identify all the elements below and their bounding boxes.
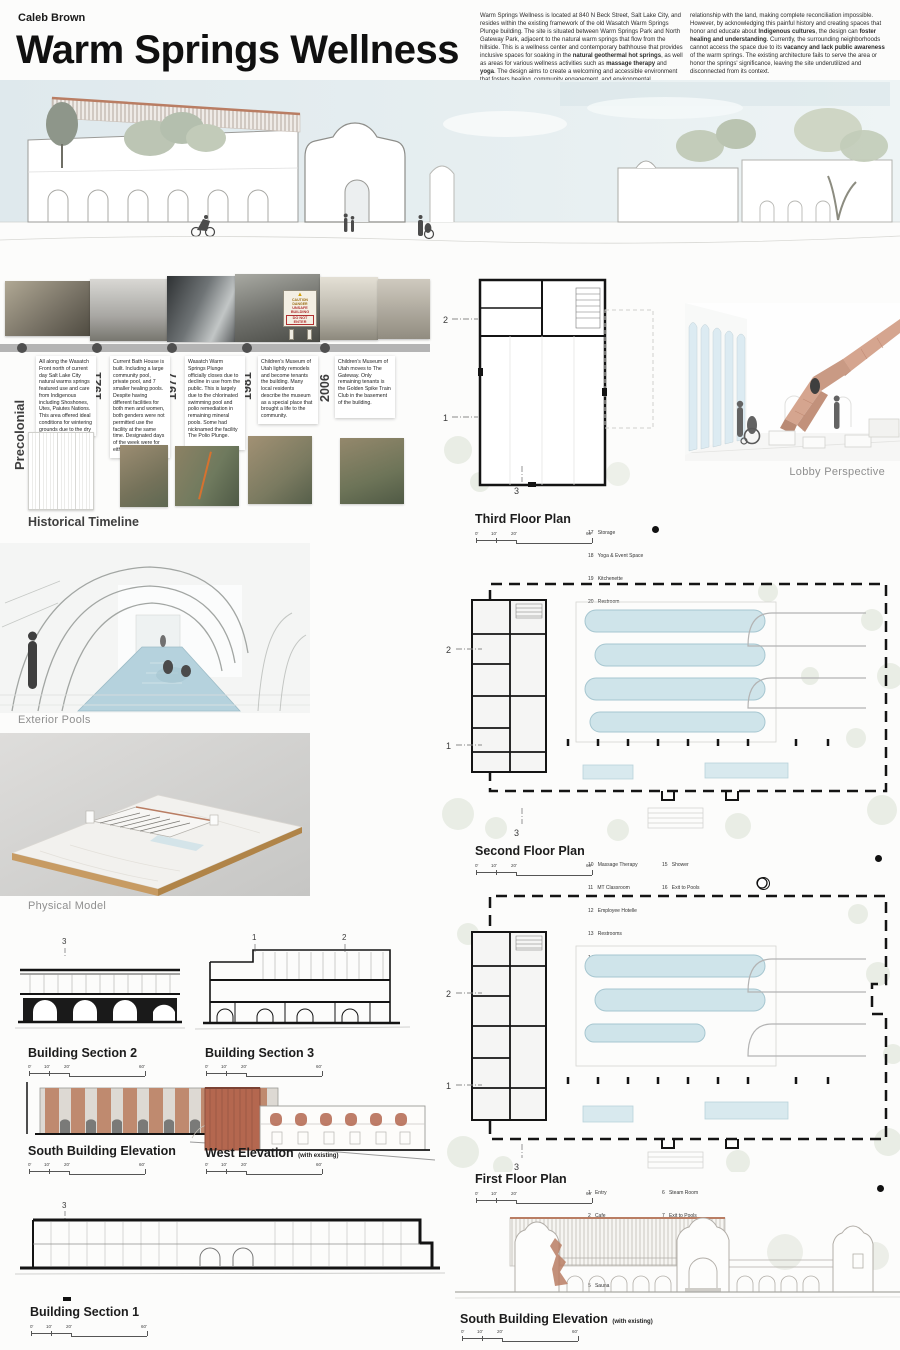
photo-building-side [378, 279, 430, 339]
grid-mark-3: 3 [514, 486, 519, 496]
scale-bar: 0'10' 20'60' [476, 531, 596, 546]
third-floor-plan-label: Third Floor Plan [475, 512, 571, 526]
grid-mark-1: 1 [443, 413, 448, 423]
grid-mark-1: 1 [446, 1081, 451, 1091]
timeline-text-2006: Children's Museum of Utah moves to The G… [335, 356, 395, 418]
grid-mark-2: 2 [446, 645, 451, 655]
timeline-year-2006: 2006 [318, 374, 332, 402]
grid-mark-3: 3 [514, 1162, 519, 1172]
third-floor-plan-drawing: 2 1 3 [438, 268, 664, 511]
first-floor-plan-drawing: 2 1 3 [438, 874, 900, 1177]
timeline-bar [0, 344, 430, 352]
first-floor-plan-label: First Floor Plan [475, 1172, 567, 1186]
timeline-year-precolonial: Precolonial [12, 400, 27, 470]
page-dot-2 [875, 855, 882, 862]
photo-bathhouse-exterior [90, 279, 167, 341]
photo-indoor-pool [167, 276, 235, 342]
photo-abandoned-building: ▲ CAUTION DANGER UNSAFE BUILDING DO NOT … [235, 274, 320, 342]
poster: Caleb Brown Warm Springs Wellness Warm S… [0, 0, 900, 1350]
section-tick [63, 1297, 71, 1301]
timeline-dot [167, 343, 177, 353]
timeline-text-1977: Wasatch Warm Springs Plunge officially c… [185, 356, 245, 450]
building-section-1-drawing: 3 [15, 1198, 445, 1288]
south-elevation-existing-label-row: South Building Elevation (with existing) [460, 1310, 653, 1328]
south-building-elevation-label: South Building Elevation [28, 1144, 176, 1158]
photo-strip: ▲ CAUTION DANGER UNSAFE BUILDING DO NOT … [0, 272, 432, 344]
timeline-text-1981: Children's Museum of Utah lightly remode… [258, 356, 318, 424]
second-floor-plan-label: Second Floor Plan [475, 844, 585, 858]
caution-sign-line3: DO NOT ENTER [286, 315, 314, 326]
photo-horseback-riders [5, 281, 90, 336]
section-mark-1: 1 [252, 933, 257, 942]
scale-bar: 0'10' 20'60' [476, 1191, 596, 1206]
building-section-3-label: Building Section 3 [205, 1046, 314, 1060]
grid-mark-2: 2 [443, 315, 448, 325]
intro-paragraph-3: relationship with the land, making compl… [690, 12, 890, 76]
scale-bar: 0'10' 20'60' [462, 1329, 582, 1344]
lobby-perspective-render [685, 303, 900, 466]
scale-bar: 0'10' 20'60' [29, 1064, 149, 1079]
sign-leg [289, 329, 294, 340]
historical-timeline-heading: Historical Timeline [28, 515, 139, 529]
exterior-pools-caption: Exterior Pools [18, 714, 91, 726]
timeline-dot [92, 343, 102, 353]
building-section-2-drawing: 3 [15, 932, 185, 1050]
second-floor-plan-drawing: 2 1 3 [438, 556, 900, 847]
building-section-2-label: Building Section 2 [28, 1046, 137, 1060]
section-mark-3: 3 [62, 937, 67, 946]
aerial-photo-1981 [248, 436, 312, 504]
sign-leg [307, 329, 312, 340]
aerial-photo-2006 [340, 438, 404, 504]
exterior-pools-render [0, 543, 310, 718]
building-section-3-drawing: 1 2 [195, 928, 410, 1050]
grid-mark-1: 1 [446, 741, 451, 751]
caution-sign-line2: UNSAFE BUILDING [284, 306, 316, 315]
south-elevation-existing-label: South Building Elevation [460, 1312, 608, 1326]
timeline-dot [242, 343, 252, 353]
caution-sign: ▲ CAUTION DANGER UNSAFE BUILDING DO NOT … [283, 290, 317, 327]
caution-sign-line1: CAUTION DANGER [284, 298, 316, 306]
photo-arched-facade [320, 277, 378, 340]
timeline-dot [17, 343, 27, 353]
west-elevation-label-row: West Elevation (with existing) [205, 1144, 338, 1162]
page-dot-3 [877, 1185, 884, 1192]
timeline-text-1921: Current Bath House is built. Including a… [110, 356, 170, 458]
timeline-dot [320, 343, 330, 353]
grid-mark-3: 3 [514, 828, 519, 838]
west-elevation-suffix: (with existing) [298, 1153, 338, 1159]
grid-mark-2: 2 [446, 989, 451, 999]
section-mark-3: 3 [62, 1201, 67, 1210]
hero-render [0, 72, 900, 262]
building-section-1-label: Building Section 1 [30, 1305, 139, 1319]
south-building-elevation-existing-drawing [455, 1210, 900, 1310]
page-dot-1 [652, 526, 659, 533]
aerial-photo-1977 [175, 446, 239, 506]
section-mark-2: 2 [342, 933, 347, 942]
author-name: Caleb Brown [18, 12, 85, 24]
west-elevation-label: West Elevation [205, 1146, 294, 1160]
scale-bar: 0'10' 20'60' [206, 1064, 326, 1079]
scale-bar: 0'10' 20'60' [31, 1324, 151, 1339]
aerial-photo-1921 [120, 445, 168, 507]
poster-title: Warm Springs Wellness [16, 28, 459, 73]
physical-model-caption: Physical Model [28, 900, 106, 912]
scale-bar: 0'10' 20'60' [206, 1162, 326, 1177]
scale-bar: 0'10' 20'60' [29, 1162, 149, 1177]
physical-model-photo [0, 733, 310, 901]
open-circle-marker [757, 877, 770, 890]
south-elevation-existing-suffix: (with existing) [612, 1319, 652, 1325]
timeline-text-precolonial: All along the Wasatch Front north of cur… [36, 356, 96, 436]
lobby-perspective-caption: Lobby Perspective [700, 466, 885, 478]
site-plan-sketch [28, 432, 94, 510]
